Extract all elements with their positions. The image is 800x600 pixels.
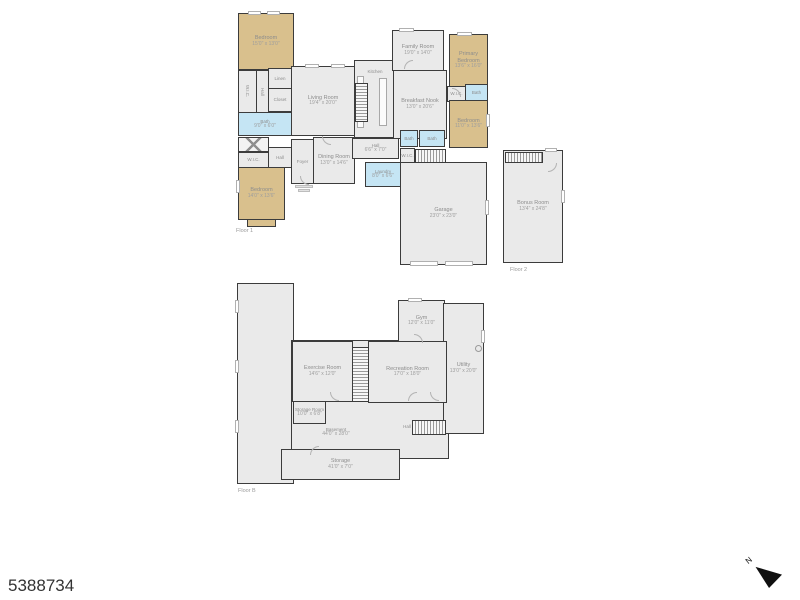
room-breakfast-nook: Breakfast Nook 13'0" x 20'6" [393, 70, 447, 139]
room-dims: 6'6" x 7'0" [365, 148, 387, 154]
room-label: Bath [472, 90, 481, 95]
room-dims: 11'0" x 13'6" [455, 124, 482, 130]
room-bath-4: Bath [419, 130, 445, 147]
room-dims: 13'4" x 24'8" [519, 207, 546, 213]
compass-north-label: N [744, 555, 754, 566]
room-label: Kitchen [367, 69, 382, 74]
north-arrow-icon [755, 565, 782, 588]
room-closet-a: Closet [268, 88, 292, 112]
room-dims: 41'0" x 7'0" [328, 465, 353, 471]
window [267, 11, 280, 15]
room-bedroom-top-left: Bedroom 15'0" x 13'0" [238, 13, 294, 70]
window [331, 64, 345, 68]
stairs-to-bonus [415, 149, 446, 163]
room-hall-b: Hall [268, 147, 292, 168]
entry-step [295, 185, 313, 188]
room-utility: Utility 13'0" x 20'0" [443, 303, 484, 434]
window [305, 64, 319, 68]
room-dims: 23'0" x 23'0" [430, 214, 457, 220]
kitchen-island [379, 78, 387, 126]
room-bedroom-bottom-left: Bedroom 14'0" x 13'6" [238, 167, 285, 220]
room-dims: 15'0" x 13'0" [252, 42, 279, 48]
stairs-bonus [505, 152, 543, 163]
basement-area-label: Basement 44'0" x 28'0" [300, 424, 372, 440]
entry-step [298, 189, 310, 192]
compass: N [744, 556, 784, 590]
room-label: W.I.C. [245, 85, 250, 97]
garage-door [445, 261, 473, 266]
window [561, 190, 565, 203]
room-dims: 17'0" x 18'0" [394, 372, 421, 378]
floorplan-image: Bedroom 15'0" x 13'0" W.I.C. Hall Linen … [0, 0, 800, 600]
stairs-basement-exit [412, 420, 446, 435]
room-label: Hall [276, 155, 284, 160]
window [399, 28, 414, 32]
window [236, 180, 240, 193]
stairs-main [355, 83, 368, 122]
room-label: Bath [427, 136, 436, 141]
room-primary-bedroom: Primary Bedroom 13'6" x 16'0" [449, 34, 488, 87]
column-symbol [475, 345, 482, 352]
room-wic-b: W.I.C. [238, 152, 269, 168]
room-dims: 13'0" x 20'0" [450, 369, 477, 375]
floor1-caption: Floor 1 [236, 228, 253, 234]
room-dims: 14'6" x 12'0" [309, 372, 336, 378]
window [486, 114, 490, 127]
room-label: Hall [260, 88, 265, 96]
window [248, 11, 261, 15]
room-dining: Dining Room 13'0" x 14'6" [313, 137, 355, 184]
room-label: Linen [274, 76, 285, 81]
void-x-box [238, 137, 269, 152]
room-dims: 19'4" x 20'0" [309, 101, 336, 107]
room-bath-2: Bath [465, 84, 488, 101]
room-dims: 9'0" x 6'0" [254, 124, 276, 130]
room-family: Family Room 19'0" x 14'0" [392, 30, 444, 71]
listing-id: 5388734 [8, 576, 74, 596]
room-gym: Gym 12'0" x 11'0" [398, 300, 445, 342]
basement-caption: Floor B [238, 488, 256, 494]
room-label: W.I.C. [401, 153, 413, 158]
room-exercise: Exercise Room 14'6" x 12'0" [292, 341, 353, 402]
room-dims: 12'0" x 11'0" [408, 321, 435, 327]
room-bath-3: Bath [400, 130, 418, 147]
room-label: Bath [404, 136, 413, 141]
room-linen: Linen [268, 68, 292, 89]
window [235, 360, 239, 373]
room-hall-c: Hall 6'6" x 7'0" [352, 138, 399, 159]
room-label: Closet [274, 97, 287, 102]
window [457, 32, 472, 36]
room-bedroom-right: Bedroom 11'0" x 13'6" [449, 100, 488, 148]
window [408, 298, 422, 302]
room-label: W.I.C. [247, 157, 259, 162]
room-bath-1: Bath 9'0" x 6'0" [238, 112, 292, 136]
room-wic-a: W.I.C. [238, 70, 257, 113]
stairs-basement-main [352, 347, 369, 402]
room-dims: 19'0" x 14'0" [404, 51, 431, 57]
room-dims: 13'0" x 14'6" [320, 161, 347, 167]
room-label: Hall [403, 424, 411, 429]
room-storage-strip: Storage 41'0" x 7'0" [281, 449, 400, 480]
room-dims: 13'6" x 16'0" [455, 64, 482, 70]
window [481, 330, 485, 343]
room-storage-room: Storage Room 10'0" x 6'8" [293, 401, 326, 424]
window [485, 200, 489, 215]
garage-door [410, 261, 438, 266]
window [235, 300, 239, 313]
room-living: Living Room 19'4" x 20'0" [291, 66, 355, 136]
room-laundry: Laundry 8'0" x 6'6" [365, 162, 401, 187]
bay-window [247, 219, 276, 227]
room-dims: 44'0" x 28'0" [322, 432, 349, 438]
room-dims: 14'0" x 13'6" [248, 194, 275, 200]
room-garage: Garage 23'0" x 23'0" [400, 162, 487, 265]
room-dims: 10'0" x 6'8" [297, 412, 322, 418]
room-dims: 8'0" x 6'6" [372, 174, 394, 180]
room-label: Foyer [297, 159, 309, 164]
window [235, 420, 239, 433]
floor2-caption: Floor 2 [510, 267, 527, 273]
window [545, 148, 557, 152]
room-dims: 13'0" x 20'6" [406, 105, 433, 111]
